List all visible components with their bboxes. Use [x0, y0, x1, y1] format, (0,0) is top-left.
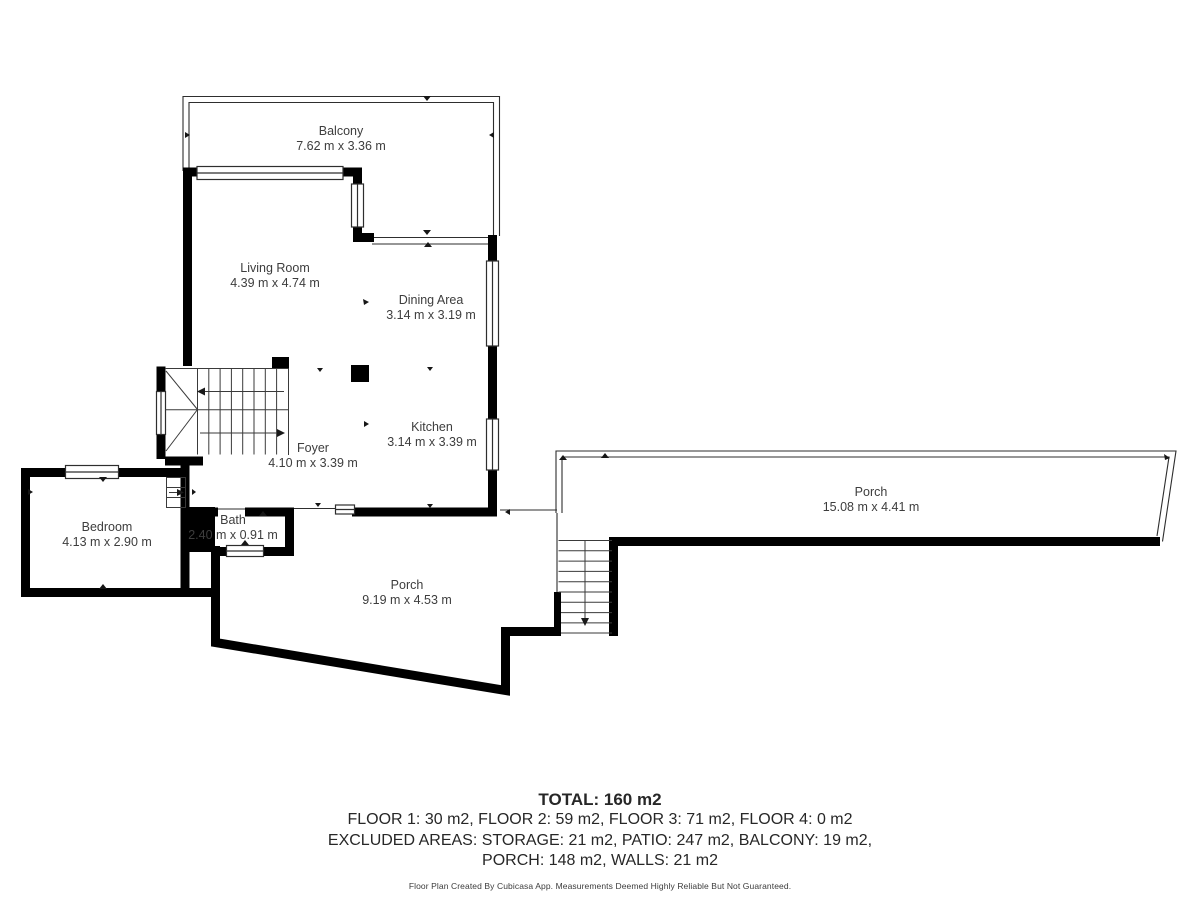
- room-name: Bath: [188, 513, 278, 528]
- room-label-bath: Bath 2.40 m x 0.91 m: [188, 513, 278, 542]
- room-label-porch-long: Porch 15.08 m x 4.41 m: [823, 485, 920, 514]
- excluded-areas-2: PORCH: 148 m2, WALLS: 21 m2: [0, 851, 1200, 872]
- room-dimensions: 3.14 m x 3.39 m: [387, 435, 477, 450]
- floorplan-canvas: Balcony 7.62 m x 3.36 m Living Room 4.39…: [0, 0, 1200, 900]
- room-name: Kitchen: [387, 420, 477, 435]
- room-name: Porch: [362, 578, 452, 593]
- column: [351, 365, 369, 382]
- interior-stairs-arrowheads: [197, 388, 285, 438]
- room-dimensions: 4.10 m x 3.39 m: [268, 456, 358, 471]
- disclaimer-text: Floor Plan Created By Cubicasa App. Meas…: [0, 881, 1200, 891]
- area-summary: TOTAL: 160 m2 FLOOR 1: 30 m2, FLOOR 2: 5…: [0, 789, 1200, 891]
- room-dimensions: 4.13 m x 2.90 m: [62, 535, 152, 550]
- room-name: Balcony: [296, 124, 386, 139]
- excluded-areas-1: EXCLUDED AREAS: STORAGE: 21 m2, PATIO: 2…: [0, 831, 1200, 852]
- exterior-stairs-arrowhead: [581, 618, 589, 626]
- porch-long-outline: [500, 451, 1176, 594]
- room-label-balcony: Balcony 7.62 m x 3.36 m: [296, 124, 386, 153]
- room-name: Bedroom: [62, 520, 152, 535]
- room-dimensions: 9.19 m x 4.53 m: [362, 593, 452, 608]
- room-label-living-room: Living Room 4.39 m x 4.74 m: [230, 261, 320, 290]
- room-name: Porch: [823, 485, 920, 500]
- room-label-foyer: Foyer 4.10 m x 3.39 m: [268, 441, 358, 470]
- room-label-dining-area: Dining Area 3.14 m x 3.19 m: [386, 293, 476, 322]
- floor-areas: FLOOR 1: 30 m2, FLOOR 2: 59 m2, FLOOR 3:…: [0, 810, 1200, 831]
- room-label-kitchen: Kitchen 3.14 m x 3.39 m: [387, 420, 477, 449]
- room-name: Living Room: [230, 261, 320, 276]
- exterior-walls: [21, 168, 1160, 691]
- room-dimensions: 4.39 m x 4.74 m: [230, 276, 320, 291]
- room-name: Foyer: [268, 441, 358, 456]
- room-dimensions: 15.08 m x 4.41 m: [823, 500, 920, 515]
- floorplan-drawing: [0, 0, 1200, 900]
- total-area: TOTAL: 160 m2: [0, 789, 1200, 810]
- room-dimensions: 3.14 m x 3.19 m: [386, 308, 476, 323]
- room-dimensions: 2.40 m x 0.91 m: [188, 528, 278, 543]
- room-label-bedroom: Bedroom 4.13 m x 2.90 m: [62, 520, 152, 549]
- room-name: Dining Area: [386, 293, 476, 308]
- room-label-porch-lower: Porch 9.19 m x 4.53 m: [362, 578, 452, 607]
- room-dimensions: 7.62 m x 3.36 m: [296, 139, 386, 154]
